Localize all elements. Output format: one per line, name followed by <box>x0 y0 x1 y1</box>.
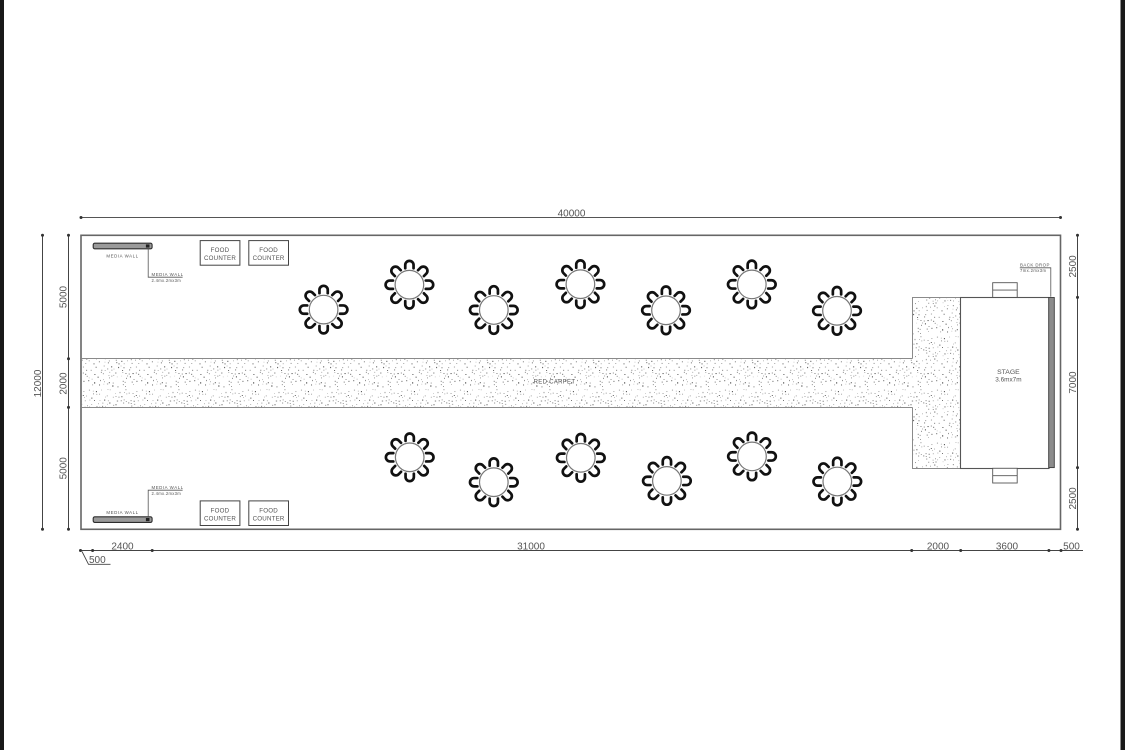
svg-text:3600: 3600 <box>996 542 1019 553</box>
svg-text:2500: 2500 <box>1068 255 1079 278</box>
svg-text:7mx.2mx3m: 7mx.2mx3m <box>1020 268 1047 273</box>
svg-text:FOOD: FOOD <box>211 247 230 254</box>
svg-text:MEDIA WALL: MEDIA WALL <box>152 485 184 490</box>
svg-text:500: 500 <box>89 555 106 566</box>
svg-text:MEDIA WALL: MEDIA WALL <box>106 510 138 515</box>
svg-text:2400: 2400 <box>111 542 134 553</box>
svg-text:500: 500 <box>1063 542 1080 553</box>
svg-text:BACK DROP: BACK DROP <box>1020 263 1050 268</box>
svg-text:5000: 5000 <box>59 457 70 480</box>
svg-text:MEDIA WALL: MEDIA WALL <box>106 253 138 258</box>
svg-text:COUNTER: COUNTER <box>204 515 236 522</box>
svg-text:2000: 2000 <box>59 372 70 395</box>
svg-text:2500: 2500 <box>1068 487 1079 510</box>
svg-text:COUNTER: COUNTER <box>204 255 236 262</box>
svg-text:FOOD: FOOD <box>211 507 230 514</box>
svg-text:40000: 40000 <box>558 208 586 219</box>
svg-text:3.6mx7m: 3.6mx7m <box>995 376 1021 383</box>
svg-text:COUNTER: COUNTER <box>253 515 285 522</box>
svg-text:STAGE: STAGE <box>997 369 1020 376</box>
svg-text:7000: 7000 <box>1068 371 1079 394</box>
svg-text:FOOD: FOOD <box>259 507 278 514</box>
svg-text:5000: 5000 <box>59 285 70 308</box>
svg-text:12000: 12000 <box>33 369 44 397</box>
svg-text:RED CARPET: RED CARPET <box>534 380 576 386</box>
svg-text:FOOD: FOOD <box>259 247 278 254</box>
svg-text:MEDIA WALL: MEDIA WALL <box>152 272 184 277</box>
svg-text:31000: 31000 <box>517 542 545 553</box>
svg-text:2.4mx.2mx3m: 2.4mx.2mx3m <box>152 278 182 283</box>
svg-text:2000: 2000 <box>927 542 950 553</box>
svg-text:2.4mx.2mx3m: 2.4mx.2mx3m <box>152 491 182 496</box>
svg-text:COUNTER: COUNTER <box>253 255 285 262</box>
